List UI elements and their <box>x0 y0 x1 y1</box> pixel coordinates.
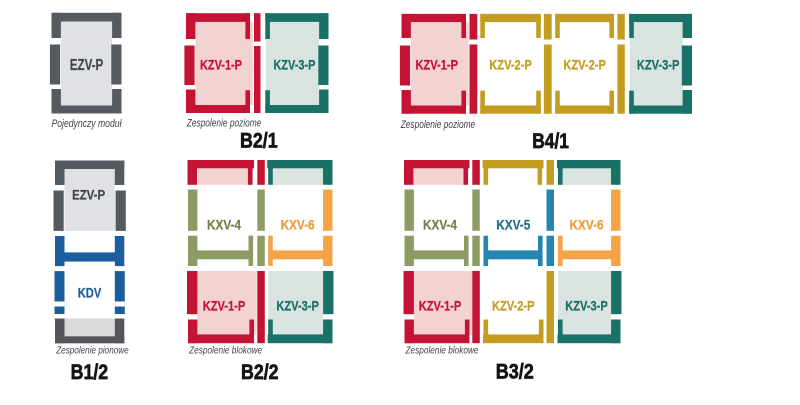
svg-text:B1/2: B1/2 <box>71 359 109 384</box>
svg-text:KZV-1-P: KZV-1-P <box>200 57 242 73</box>
svg-text:KZV-2-P: KZV-2-P <box>489 57 532 73</box>
svg-text:KZV-1-P: KZV-1-P <box>419 298 462 314</box>
svg-text:KZV-1-P: KZV-1-P <box>416 57 459 73</box>
svg-text:KZV-3-P: KZV-3-P <box>565 298 608 314</box>
svg-text:B4/1: B4/1 <box>532 128 569 153</box>
svg-text:KZV-3-P: KZV-3-P <box>276 298 319 314</box>
svg-text:EZV-P: EZV-P <box>70 57 104 74</box>
svg-text:Zespolenie poziome: Zespolenie poziome <box>400 119 475 131</box>
svg-text:KXV-5: KXV-5 <box>496 217 530 233</box>
svg-text:B2/1: B2/1 <box>240 127 278 152</box>
svg-text:KZV-1-P: KZV-1-P <box>203 298 246 314</box>
svg-text:KXV-6: KXV-6 <box>281 217 315 233</box>
svg-text:EZV-P: EZV-P <box>72 188 105 203</box>
svg-text:KZV-3-P: KZV-3-P <box>273 57 315 73</box>
svg-text:B3/2: B3/2 <box>496 358 534 383</box>
svg-text:Zespolenie pionowe: Zespolenie pionowe <box>55 344 128 356</box>
svg-text:KZV-2-P: KZV-2-P <box>492 298 535 314</box>
svg-text:Zespolenie blokowe: Zespolenie blokowe <box>405 344 479 356</box>
svg-text:KZV-3-P: KZV-3-P <box>637 57 680 73</box>
svg-text:Zespolenie blokowe: Zespolenie blokowe <box>188 344 262 356</box>
svg-text:Pojedynczy moduł: Pojedynczy moduł <box>52 118 122 130</box>
svg-text:KXV-4: KXV-4 <box>423 217 457 233</box>
svg-text:KZV-2-P: KZV-2-P <box>563 57 606 73</box>
svg-text:KXV-6: KXV-6 <box>570 217 604 233</box>
svg-text:KXV-4: KXV-4 <box>207 217 241 233</box>
svg-text:B2/2: B2/2 <box>241 359 279 384</box>
svg-text:KDV: KDV <box>78 285 102 300</box>
